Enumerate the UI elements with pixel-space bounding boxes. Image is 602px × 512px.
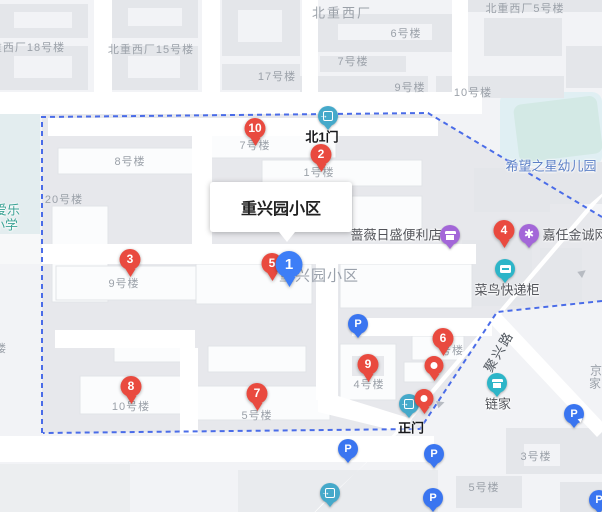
tooltip-title: 重兴园小区	[241, 195, 321, 219]
road-arrow-icon: ▶	[577, 267, 589, 280]
icon-pointer	[430, 463, 438, 472]
parking-glyph: P	[354, 319, 361, 330]
poi-label: 小学	[0, 215, 18, 234]
red-marker-10[interactable]: 10	[245, 118, 266, 146]
door-arrow-icon: →	[325, 488, 335, 498]
red-marker-plain[interactable]	[415, 389, 434, 414]
storefront-glyph	[445, 231, 456, 240]
finance-poi-icon[interactable]: ✱	[519, 224, 539, 244]
red-marker-6[interactable]: 6	[433, 328, 454, 356]
marker-tail	[419, 407, 429, 414]
storefront-glyph	[492, 379, 503, 388]
building-label: 北重西厂18号楼	[0, 39, 65, 55]
parking-glyph: P	[344, 444, 351, 455]
marker-number: 9	[358, 354, 379, 375]
cainiao-locker-icon[interactable]	[495, 259, 515, 279]
red-marker-3[interactable]: 3	[120, 249, 141, 277]
red-marker-plain[interactable]	[425, 356, 444, 381]
building-label: 3号楼	[520, 448, 551, 464]
parking-glyph: P	[429, 493, 436, 504]
marker-number: 1	[276, 251, 303, 278]
icon-pointer	[354, 333, 362, 342]
building-label: 9号楼	[394, 79, 425, 95]
door-arrow-icon: →	[404, 399, 414, 409]
gate-icon[interactable]: →	[320, 483, 340, 503]
marker-number: 2	[311, 144, 332, 165]
entrance-arrow-icon: ▶	[578, 416, 585, 424]
red-marker-2[interactable]: 2	[311, 144, 332, 172]
badge-glyph: ✱	[524, 228, 534, 240]
blue-marker-1[interactable]: 1	[276, 251, 303, 287]
parking-icon[interactable]: P	[338, 439, 358, 459]
marker-number: 8	[121, 376, 142, 397]
parking-glyph: P	[595, 495, 602, 506]
road-name-label: 聚兴路	[479, 327, 518, 375]
building-label: 10号楼	[454, 84, 492, 100]
poi-label: 家	[589, 375, 601, 392]
poi-label: 蔷薇日盛便利店	[350, 225, 441, 244]
lianjia-store-icon[interactable]	[487, 373, 507, 393]
locker-glyph	[500, 265, 511, 273]
icon-pointer	[525, 243, 533, 252]
parking-glyph: P	[430, 449, 437, 460]
icon-pointer	[501, 278, 509, 287]
building-label: 楼	[0, 340, 7, 356]
poi-label: 希望之星幼儿园	[505, 156, 596, 175]
map-overlay: 重兴园小区 北重西厂18号楼北重西厂15号楼17号楼6号楼7号楼9号楼10号楼北…	[0, 0, 602, 512]
building-label: 20号楼	[45, 191, 83, 207]
parking-glyph: P	[570, 409, 577, 420]
marker-tail	[499, 240, 509, 248]
building-label: 5号楼	[468, 479, 499, 495]
marker-tail	[252, 403, 262, 411]
marker-tail	[125, 269, 135, 277]
building-label: 17号楼	[258, 68, 296, 84]
building-label: 北重西厂5号楼	[485, 0, 564, 16]
marker-number: 10	[245, 118, 266, 139]
poi-label: 嘉任金诚网	[542, 225, 602, 244]
marker-number: 7	[247, 383, 268, 404]
red-marker-4[interactable]: 4	[494, 220, 515, 248]
icon-pointer	[405, 413, 413, 422]
marker-tail	[429, 374, 439, 381]
selected-poi-tooltip[interactable]: 重兴园小区	[210, 182, 352, 232]
icon-pointer	[326, 502, 334, 511]
marker-tail	[126, 396, 136, 404]
gate-label: 北1门	[305, 127, 338, 146]
area-label: 北重西厂	[312, 3, 372, 22]
marker-number: 6	[433, 328, 454, 349]
marker-number: 3	[120, 249, 141, 270]
red-marker-8[interactable]: 8	[121, 376, 142, 404]
marker-tail	[316, 164, 326, 172]
road-arrow-icon: ▶	[436, 398, 446, 410]
marker-number: 4	[494, 220, 515, 241]
building-label: 北重西厂15号楼	[108, 41, 194, 57]
building-label: 6号楼	[390, 25, 421, 41]
icon-pointer	[344, 458, 352, 467]
parking-icon[interactable]: P	[423, 488, 443, 508]
parking-icon[interactable]: P	[348, 314, 368, 334]
icon-pointer	[570, 423, 578, 432]
marker-tail	[438, 348, 448, 356]
parking-entrance-icon[interactable]: P▶	[564, 404, 584, 424]
marker-tail	[250, 138, 260, 146]
marker-tail	[283, 277, 295, 287]
door-arrow-icon: →	[323, 111, 333, 121]
parking-icon[interactable]: P	[424, 444, 444, 464]
gate-icon[interactable]: →	[318, 106, 338, 126]
convenience-store-icon[interactable]	[440, 225, 460, 245]
building-label: 7号楼	[337, 53, 368, 69]
parking-icon[interactable]: P	[589, 490, 602, 510]
icon-pointer	[324, 125, 332, 134]
red-marker-9[interactable]: 9	[358, 354, 379, 382]
marker-tail	[363, 374, 373, 382]
icon-pointer	[429, 507, 437, 512]
marker-number	[425, 356, 444, 375]
building-label: 8号楼	[114, 153, 145, 169]
building-label: 9号楼	[108, 275, 139, 291]
icon-pointer	[493, 392, 501, 401]
marker-number	[415, 389, 434, 408]
red-marker-7[interactable]: 7	[247, 383, 268, 411]
icon-pointer	[446, 244, 454, 253]
